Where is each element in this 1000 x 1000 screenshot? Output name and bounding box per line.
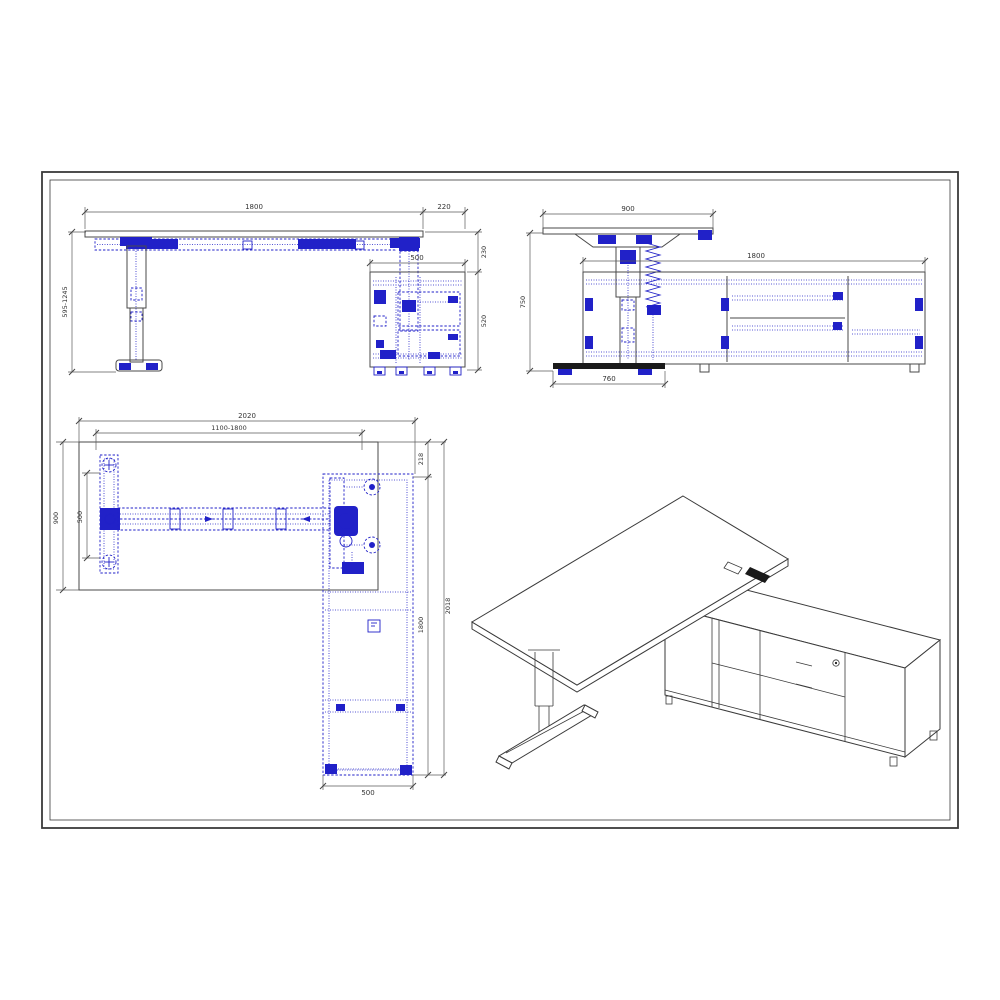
dim-label: 1100-1800 [211, 424, 246, 432]
dim-plan-desk-depth: 900 [52, 439, 79, 593]
dim-label: 218 [417, 453, 425, 465]
dim-label: 220 [437, 203, 450, 211]
view-side-elevation: 900 1800 750 760 [519, 205, 928, 388]
front-left-leg [116, 246, 162, 371]
dim-label: 1800 [417, 617, 425, 634]
front-cabinet-hinge [374, 290, 386, 304]
dim-label: 1800 [245, 203, 263, 211]
side-rear-bracket [698, 230, 712, 240]
side-credenza [583, 272, 925, 372]
dim-front-cabinet-height: 520 [467, 272, 488, 373]
front-cabinet-feet [374, 367, 461, 375]
drawing-canvas: 1800 220 500 595-1245 [0, 0, 1000, 1000]
front-cabinet [370, 272, 465, 375]
dim-front-top-gap: 230 [425, 229, 488, 275]
view-front-elevation: 1800 220 500 595-1245 [61, 203, 488, 375]
dim-label: 2018 [444, 598, 452, 615]
dim-plan-credenza-offset: 218 [378, 439, 446, 775]
front-rail-bracket [298, 239, 356, 249]
dim-plan-overall-width: 2020 [76, 412, 418, 474]
dim-plan-credenza-length: 1800 [417, 617, 431, 778]
dim-label: 500 [361, 789, 374, 797]
dim-label: 520 [480, 315, 488, 327]
dim-plan-overall-depth: 2018 [413, 439, 452, 778]
dim-label: 1800 [747, 252, 765, 260]
dim-label: 750 [519, 296, 527, 308]
dim-front-cabinet-width: 500 [367, 254, 468, 272]
dim-plan-frame-range: 1100-1800 [93, 424, 365, 450]
side-credenza-foot [700, 364, 709, 372]
dim-plan-foot-span: 500 [76, 470, 100, 561]
dim-label: 760 [602, 375, 615, 383]
dim-label: 900 [52, 512, 60, 524]
dim-front-desk-width: 1800 [82, 203, 426, 229]
view-plan: 2020 1100-1800 900 500 [52, 412, 452, 797]
front-desktop [85, 231, 423, 237]
dim-side-desk-depth: 900 [540, 205, 716, 228]
dim-side-total-height: 750 [519, 230, 553, 374]
view-isometric [472, 496, 940, 769]
side-drawer-handle [833, 322, 842, 330]
plan-control-box [342, 562, 364, 574]
side-credenza-foot [910, 364, 919, 372]
side-leg-foot [553, 363, 665, 375]
side-drawer-handle [833, 292, 843, 300]
iso-caster [890, 757, 897, 766]
iso-foot [499, 705, 597, 763]
side-actuator-spring [646, 243, 661, 360]
technical-drawing-svg: 1800 220 500 595-1245 [0, 0, 1000, 1000]
front-leg-cap [120, 237, 152, 246]
plan-leg-frame [100, 455, 380, 574]
dim-front-height-range: 595-1245 [61, 229, 116, 375]
dim-front-overhang: 220 [423, 203, 468, 229]
dim-label: 2020 [238, 412, 256, 420]
dim-label: 900 [621, 205, 634, 213]
dim-label: 230 [480, 246, 488, 258]
side-leg-column [616, 247, 640, 365]
dim-label: 595-1245 [61, 286, 69, 317]
dim-plan-credenza-width: 500 [320, 775, 416, 797]
side-desktop [543, 228, 713, 234]
side-top-bracket [575, 234, 680, 247]
dim-label: 500 [410, 254, 423, 262]
iso-caster [666, 696, 672, 704]
dim-label: 500 [76, 511, 84, 523]
